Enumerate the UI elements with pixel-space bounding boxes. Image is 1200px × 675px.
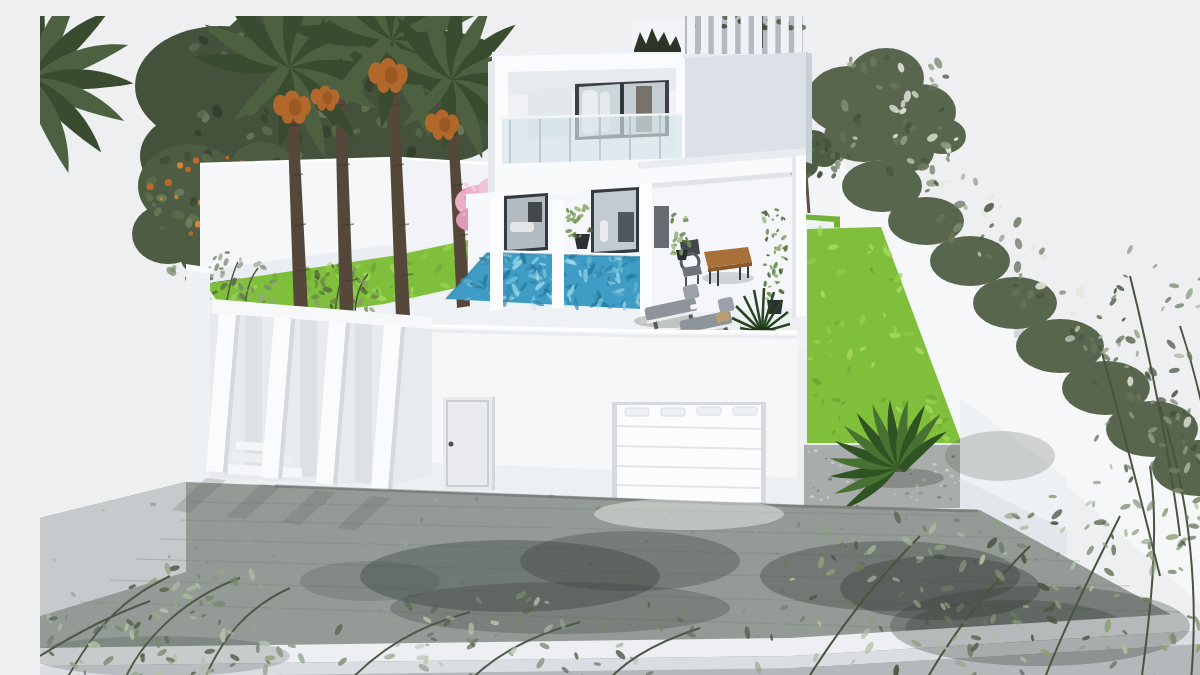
interior-tv <box>528 202 542 222</box>
gravel-stone <box>937 496 941 499</box>
gravel-stone <box>819 498 823 501</box>
interior-lamp <box>600 220 608 242</box>
render-canvas <box>40 16 1200 675</box>
gravel-stone <box>905 492 910 495</box>
interior-sofa <box>510 222 534 232</box>
gravel-stone <box>932 463 936 466</box>
front-door <box>443 397 495 490</box>
gravel-stone <box>814 449 818 452</box>
orange-fruit <box>165 179 172 186</box>
gravel-stone <box>808 451 811 453</box>
gravel-stone <box>949 474 954 477</box>
gravel-stone <box>918 492 923 495</box>
orange-fruit <box>193 157 199 163</box>
interior-chair <box>618 212 634 242</box>
gravel-stone <box>816 490 819 492</box>
roof-slat-railing <box>687 16 802 57</box>
entrance-side-wall <box>186 268 210 484</box>
gravel-stone <box>825 458 827 460</box>
gravel-stone <box>945 469 949 472</box>
orange-fruit <box>160 197 163 200</box>
gravel-stone <box>894 493 897 495</box>
gravel-stone <box>940 485 943 487</box>
fin-gap-shade <box>300 315 317 477</box>
hedge-shadow <box>945 431 1055 481</box>
gravel-stone <box>831 461 835 464</box>
gravel-stone <box>807 463 809 464</box>
gravel-stone <box>826 497 829 499</box>
gravel-stone <box>915 499 918 501</box>
gravel-stone <box>954 482 957 484</box>
hedge-mass <box>930 236 1010 286</box>
tower-side <box>806 52 812 164</box>
gravel-stone <box>810 495 814 498</box>
leaf <box>256 645 260 653</box>
garage-door <box>612 402 766 504</box>
door-handle <box>449 442 454 447</box>
orange-fruit <box>174 195 178 199</box>
gravel-stone <box>910 496 912 498</box>
leaf-speckle <box>186 218 193 229</box>
water-ripple <box>583 269 588 283</box>
orange-fruit <box>226 156 230 160</box>
orange-fruit <box>177 162 183 168</box>
gravel-stone <box>943 485 947 488</box>
orange-fruit <box>185 167 191 173</box>
patio-column <box>640 183 652 324</box>
door-jamb-shade <box>492 397 495 490</box>
gravel-stone <box>828 477 832 480</box>
orange-fruit <box>147 183 154 190</box>
tree-canopy <box>918 118 966 154</box>
interior-opening <box>654 206 669 248</box>
gravel-stone <box>846 481 849 483</box>
leaf <box>468 623 474 636</box>
fin-gap-shade <box>355 319 372 483</box>
upper-floor-side <box>488 60 496 198</box>
architectural-render: 3D architectural rendering of a modern t… <box>40 16 1200 675</box>
gravel-stone <box>950 498 953 500</box>
gravel-stone <box>839 464 843 467</box>
column-shade <box>792 157 796 318</box>
pergola-column <box>552 200 564 309</box>
pergola-column <box>490 196 503 311</box>
garage-light-glow <box>594 498 784 530</box>
leaf <box>224 251 230 254</box>
gravel-stone <box>813 487 815 488</box>
orange-fruit <box>189 231 194 236</box>
covered-patio <box>634 148 806 343</box>
leaf <box>239 257 242 263</box>
